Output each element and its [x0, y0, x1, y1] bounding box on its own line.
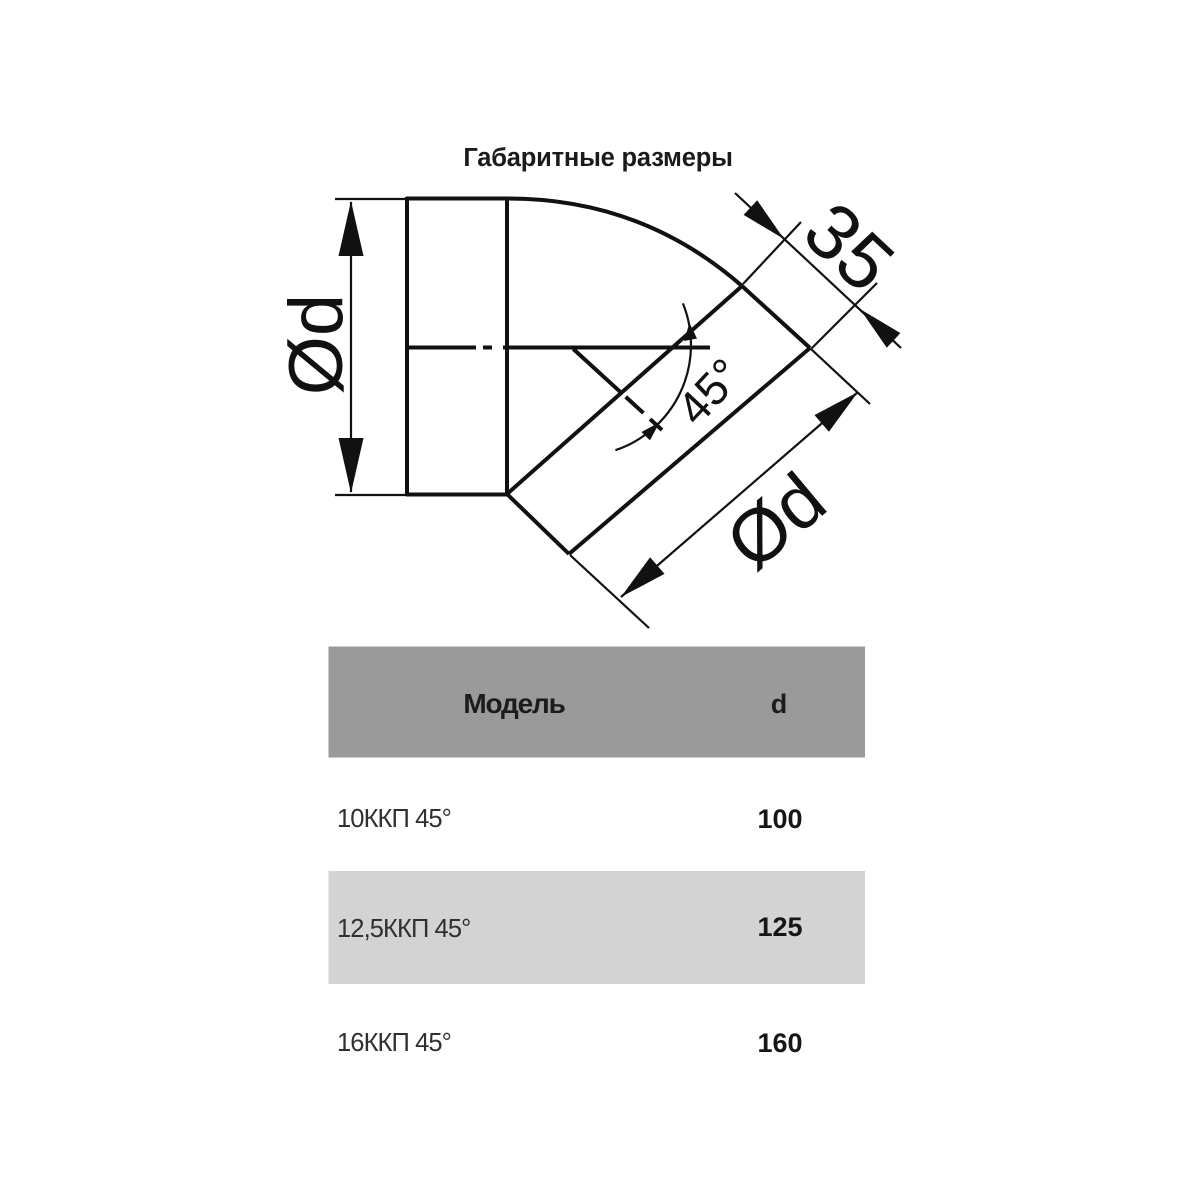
svg-text:d: d — [771, 689, 788, 719]
svg-text:Модель: Модель — [463, 688, 565, 719]
svg-text:12,5ККП 45°: 12,5ККП 45° — [337, 915, 470, 943]
svg-text:10ККП 45°: 10ККП 45° — [337, 805, 451, 833]
svg-text:16ККП 45°: 16ККП 45° — [337, 1029, 451, 1057]
svg-text:125: 125 — [757, 912, 802, 942]
svg-text:100: 100 — [757, 804, 802, 834]
svg-text:Габаритные размеры: Габаритные размеры — [463, 144, 732, 172]
svg-text:Ød: Ød — [274, 294, 359, 395]
svg-text:160: 160 — [757, 1028, 802, 1058]
